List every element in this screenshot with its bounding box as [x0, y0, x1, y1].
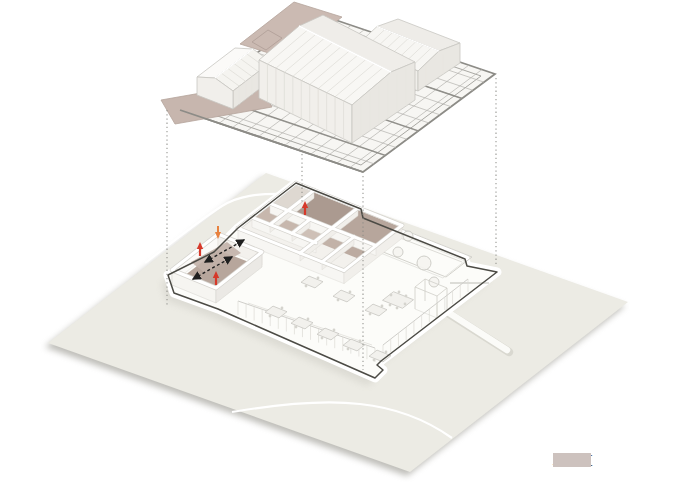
chair-dot: [347, 348, 350, 351]
chair-dot: [389, 304, 392, 307]
chair-dot: [396, 307, 399, 310]
chair-dot: [307, 318, 310, 321]
chair-dot: [295, 326, 298, 329]
legend-swatch: [553, 453, 591, 467]
chair-dot: [321, 337, 324, 340]
chair-dot: [305, 285, 308, 288]
tree-circle: [393, 247, 403, 257]
chair-dot: [369, 313, 372, 316]
legend: 工作区: [553, 453, 594, 470]
chair-dot: [390, 294, 393, 297]
chair-dot: [373, 359, 376, 362]
tree-circle: [429, 277, 439, 287]
chair-dot: [405, 295, 408, 298]
chair-dot: [333, 329, 336, 332]
chair-dot: [359, 340, 362, 343]
chair-dot: [398, 291, 401, 294]
chair-dot: [269, 315, 272, 318]
chair-dot: [381, 305, 384, 308]
diagram-canvas: [0, 0, 700, 483]
roof-assembly: [161, 2, 495, 172]
axonometric-diagram: 工作区: [0, 0, 700, 483]
chair-dot: [404, 303, 407, 306]
chair-dot: [317, 277, 320, 280]
chair-dot: [281, 307, 284, 310]
legend-swatch-rect: [553, 453, 591, 467]
chair-dot: [349, 291, 352, 294]
tree-circle: [417, 256, 431, 270]
chair-dot: [385, 351, 388, 354]
chair-dot: [337, 299, 340, 302]
